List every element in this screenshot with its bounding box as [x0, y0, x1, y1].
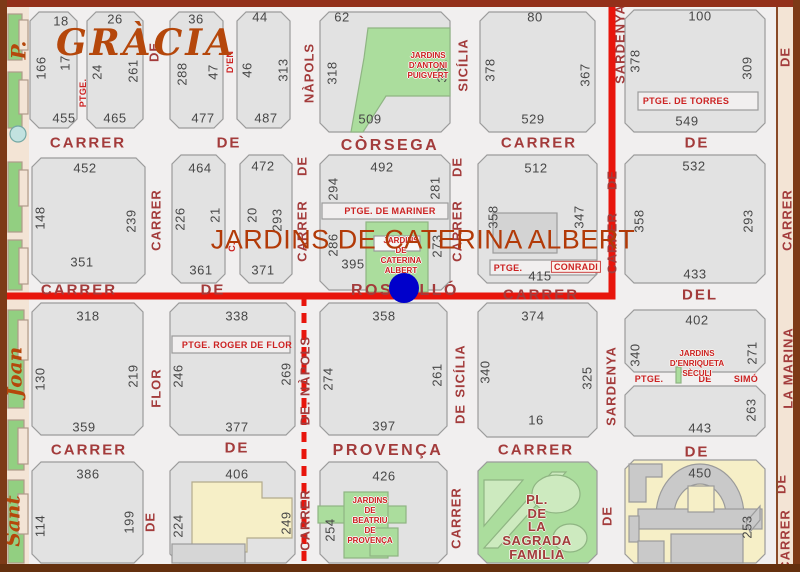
- street-name-label: CÒRSEGA: [341, 137, 439, 155]
- building-number: 130: [34, 367, 49, 390]
- building-number: 509: [358, 113, 381, 128]
- building-number: 219: [127, 364, 142, 387]
- building-number: 313: [277, 58, 292, 81]
- building-number: 318: [76, 310, 99, 325]
- building-number: 377: [225, 421, 248, 436]
- building-number: 487: [254, 112, 277, 127]
- building-number: 386: [76, 468, 99, 483]
- street-name-label-vertical: CARRER: [450, 487, 465, 549]
- passage-label: PTGE. DE MARINER: [344, 206, 435, 216]
- map-border: [793, 0, 800, 572]
- park-label: JARDINS D'ANTONI PUIGVERT: [408, 51, 449, 81]
- building-number: 263: [745, 398, 760, 421]
- building-number: 274: [322, 367, 337, 390]
- destination-marker[interactable]: [389, 273, 419, 303]
- street-name-label-vertical: CARRER: [299, 489, 314, 551]
- street-name-label-vertical: DE: [779, 47, 794, 67]
- building-number: 47: [207, 64, 222, 79]
- street-name-label: PROVENÇA: [333, 442, 444, 460]
- street-name-label: DE: [685, 443, 710, 460]
- street-name-label: CARRER: [503, 286, 579, 303]
- street-name-label-vertical: DE: [601, 506, 616, 526]
- plaza-label: PL. DE LA SAGRADA FAMÍLIA: [502, 493, 571, 561]
- street-name-label: CARRER: [498, 441, 574, 458]
- building-number: 361: [189, 264, 212, 279]
- building-number: 249: [280, 511, 295, 534]
- building-number: 44: [252, 11, 267, 26]
- building-number: 452: [73, 162, 96, 177]
- street-name-label-vertical: CARRER: [779, 509, 794, 571]
- map-canvas[interactable]: 1816617455262426146536288474774446313487…: [0, 0, 800, 572]
- passage-label: PTGE. ROGER DE FLOR: [182, 340, 292, 350]
- building-number: 529: [521, 113, 544, 128]
- street-name-label-vertical: SICÍLIA: [457, 38, 472, 91]
- building-number: 239: [125, 209, 140, 232]
- street-name-label: DE: [685, 134, 710, 151]
- building-number: 397: [372, 420, 395, 435]
- building-number: 340: [629, 343, 644, 366]
- building-number: 293: [742, 209, 757, 232]
- building-number: 100: [688, 10, 711, 25]
- building-number: 395: [341, 258, 364, 273]
- highlight-label-jardins-caterina-albert: JARDINS DE CATERINA ALBERT: [211, 225, 636, 256]
- street-name-label: CARRER: [50, 134, 126, 151]
- building-number: 378: [629, 49, 644, 72]
- street-name-label-vertical: DE: [296, 156, 311, 176]
- building-number: 62: [334, 11, 349, 26]
- building-number: 318: [326, 61, 341, 84]
- street-name-label-vertical: NÀPOLS: [303, 43, 318, 103]
- street-name-label-vertical: DE.: [299, 401, 314, 426]
- building-number: 450: [688, 467, 711, 482]
- building-number: 224: [172, 514, 187, 537]
- building-number: 402: [685, 314, 708, 329]
- building-number: 24: [91, 64, 106, 79]
- street-name-label: DE: [217, 134, 242, 151]
- street-name-label: DE: [225, 439, 250, 456]
- street-name-label-vertical: NÀPOLS: [299, 336, 314, 396]
- building-number: 374: [521, 310, 544, 325]
- passage-label: SIMÓ: [734, 374, 758, 384]
- building-number: 464: [188, 162, 211, 177]
- park-label: JARDINS DE BEATRIU DE PROVENÇA: [347, 496, 392, 546]
- building-number: 269: [280, 362, 295, 385]
- building-number: 433: [683, 268, 706, 283]
- building-number: 281: [429, 176, 444, 199]
- building-number: 472: [251, 160, 274, 175]
- building-number: 455: [52, 112, 75, 127]
- street-name-label: CARRER: [41, 281, 117, 298]
- building-number: 254: [324, 518, 339, 541]
- street-name-label-vertical: SARDENYA: [614, 4, 629, 84]
- passage-label: PTGE.: [78, 79, 88, 108]
- building-number: 288: [176, 62, 191, 85]
- street-name-label-vertical: FLOR: [150, 368, 165, 407]
- street-name-label: CARRER: [501, 134, 577, 151]
- street-name-label-vertical: SICÍLIA: [454, 344, 469, 397]
- building-number: 301: [436, 59, 451, 82]
- building-number: 16: [528, 414, 543, 429]
- district-label-gracia: GRÀCIA: [56, 22, 236, 64]
- street-name-label: CARRER: [51, 441, 127, 458]
- building-number: 406: [225, 468, 248, 483]
- building-number: 426: [372, 470, 395, 485]
- building-number: 21: [209, 207, 224, 222]
- building-number: 340: [479, 360, 494, 383]
- map-border: [776, 5, 778, 565]
- building-number: 477: [191, 112, 214, 127]
- boulevard-label: P.: [8, 41, 31, 60]
- building-number: 261: [431, 363, 446, 386]
- building-number: 492: [370, 161, 393, 176]
- building-number: 325: [581, 366, 596, 389]
- building-number: 309: [741, 56, 756, 79]
- building-number: 443: [688, 422, 711, 437]
- map-border: [0, 564, 800, 572]
- building-number: 415: [528, 270, 551, 285]
- passage-label: PTGE.: [494, 263, 523, 273]
- street-name-label-vertical: DE: [144, 512, 159, 532]
- building-number: 549: [675, 115, 698, 130]
- street-name-label: DE: [201, 281, 226, 298]
- passage-label: PTGE. DE TORRES: [643, 96, 729, 106]
- building-number: 367: [579, 63, 594, 86]
- building-number: 294: [327, 177, 342, 200]
- building-number: 371: [251, 264, 274, 279]
- building-number: 80: [527, 11, 542, 26]
- building-number: 512: [524, 162, 547, 177]
- park-label: JARDINS D'ENRIQUETA SÈCULI: [670, 349, 724, 379]
- building-number: 114: [34, 515, 49, 537]
- building-number: 253: [741, 515, 756, 538]
- passage-label: DE: [698, 374, 711, 384]
- building-number: 226: [174, 207, 189, 230]
- building-number: 378: [484, 58, 499, 81]
- street-name-label-vertical: DE: [454, 404, 469, 424]
- building-number: 20: [246, 207, 261, 222]
- building-number: 271: [746, 341, 761, 364]
- street-name-label-vertical: SARDENYA: [605, 346, 620, 426]
- building-number: 199: [123, 510, 138, 533]
- building-number: 351: [70, 256, 93, 271]
- building-number: 358: [372, 310, 395, 325]
- map-border: [0, 0, 7, 572]
- passage-label: PTGE.: [635, 374, 664, 384]
- passage-label: CONRADI: [551, 261, 601, 273]
- street-name-label: DEL: [682, 286, 718, 303]
- building-number: 246: [172, 364, 187, 387]
- building-number: 465: [103, 112, 126, 127]
- street-name-label-vertical: CARRER: [150, 189, 165, 251]
- map-border: [0, 0, 800, 7]
- building-number: 338: [225, 310, 248, 325]
- building-number: 166: [35, 56, 50, 79]
- street-name-label-vertical: DE: [451, 157, 466, 177]
- street-name-label-vertical: DE: [606, 170, 621, 190]
- building-number: 532: [682, 160, 705, 175]
- building-number: 46: [241, 62, 256, 77]
- building-number: 359: [72, 421, 95, 436]
- building-number: 148: [34, 206, 49, 229]
